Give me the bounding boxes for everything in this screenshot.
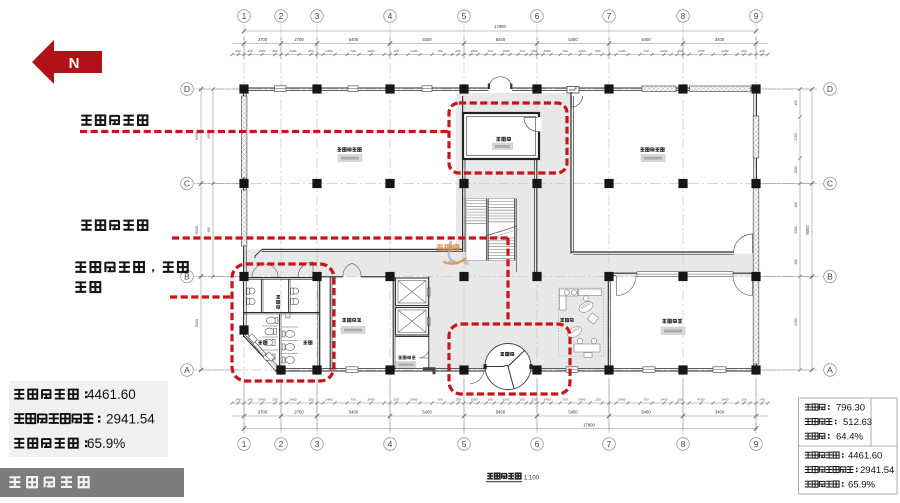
svg-text:4: 4 <box>388 11 393 21</box>
svg-text:5: 5 <box>462 11 467 21</box>
svg-text:700: 700 <box>562 49 567 53</box>
svg-text:6: 6 <box>535 439 540 449</box>
svg-text:250: 250 <box>677 49 682 53</box>
svg-text:9400: 9400 <box>794 318 798 325</box>
svg-text:2400: 2400 <box>661 49 668 53</box>
svg-text:2400: 2400 <box>259 49 266 53</box>
svg-text:250: 250 <box>677 398 682 402</box>
svg-text:3400: 3400 <box>715 410 725 415</box>
svg-text:700: 700 <box>437 398 442 402</box>
svg-text:C: C <box>827 179 833 189</box>
svg-text:796.30: 796.30 <box>836 403 865 414</box>
svg-text:3400: 3400 <box>715 37 725 42</box>
svg-text:1: 1 <box>242 11 247 21</box>
svg-text:9300: 9300 <box>195 319 199 327</box>
svg-text:250: 250 <box>531 49 536 53</box>
svg-text:7: 7 <box>607 439 612 449</box>
svg-text:A: A <box>184 365 190 375</box>
svg-text:65.9%: 65.9% <box>848 480 875 491</box>
svg-text:B: B <box>827 272 833 282</box>
svg-text:1:100: 1:100 <box>524 476 540 482</box>
svg-text:8: 8 <box>681 11 686 21</box>
svg-text:9: 9 <box>754 439 759 449</box>
svg-text:480: 480 <box>207 133 211 139</box>
svg-text:700: 700 <box>350 49 355 53</box>
svg-text:4750: 4750 <box>698 398 705 402</box>
svg-text:2400: 2400 <box>368 398 375 402</box>
svg-text:250: 250 <box>455 398 460 402</box>
svg-text:240: 240 <box>759 398 764 402</box>
svg-text:6: 6 <box>535 11 540 21</box>
svg-text:700: 700 <box>350 398 355 402</box>
svg-text:150: 150 <box>519 49 524 53</box>
svg-text:5400: 5400 <box>641 37 651 42</box>
svg-text:2: 2 <box>279 439 284 449</box>
svg-text:2400: 2400 <box>544 49 551 53</box>
svg-text:2400: 2400 <box>368 49 375 53</box>
svg-text:D: D <box>827 84 833 94</box>
svg-text:480: 480 <box>794 202 798 208</box>
svg-text:2400: 2400 <box>259 398 266 402</box>
svg-text:4750: 4750 <box>698 49 705 53</box>
svg-text:250: 250 <box>595 49 600 53</box>
svg-text:700: 700 <box>643 49 648 53</box>
svg-text:2400: 2400 <box>722 398 729 402</box>
svg-text:9400: 9400 <box>195 132 199 140</box>
svg-text:150: 150 <box>487 49 492 53</box>
svg-text:2700: 2700 <box>258 37 268 42</box>
svg-text:250: 250 <box>595 398 600 402</box>
svg-text:240: 240 <box>247 398 252 402</box>
svg-text:240: 240 <box>759 49 764 53</box>
svg-text:5400: 5400 <box>496 410 506 415</box>
svg-text:700: 700 <box>643 398 648 402</box>
svg-text:C: C <box>184 179 190 189</box>
svg-text:64.4%: 64.4% <box>836 432 863 443</box>
svg-text:1500: 1500 <box>503 49 510 53</box>
svg-text:2400: 2400 <box>619 49 626 53</box>
svg-text:5400: 5400 <box>422 410 432 415</box>
svg-text:150: 150 <box>519 398 524 402</box>
svg-text:3: 3 <box>315 11 320 21</box>
svg-text:4461.60: 4461.60 <box>87 387 136 402</box>
svg-text:250: 250 <box>741 398 746 402</box>
svg-text:240: 240 <box>235 49 240 53</box>
svg-text:1500: 1500 <box>794 166 798 173</box>
svg-text:2400: 2400 <box>326 398 333 402</box>
svg-text:17900: 17900 <box>494 24 506 29</box>
svg-text:8: 8 <box>681 439 686 449</box>
svg-text:1: 1 <box>242 439 247 449</box>
svg-text:250: 250 <box>455 49 460 53</box>
svg-text:5: 5 <box>462 439 467 449</box>
svg-text:5400: 5400 <box>641 410 651 415</box>
svg-text:1500: 1500 <box>471 398 478 402</box>
svg-text:150: 150 <box>794 100 798 106</box>
svg-text:2400: 2400 <box>619 398 626 402</box>
svg-text:250: 250 <box>741 49 746 53</box>
svg-text:2700: 2700 <box>294 410 304 415</box>
svg-text:5400: 5400 <box>422 37 432 42</box>
svg-text:2700: 2700 <box>294 37 304 42</box>
svg-text:D: D <box>184 84 190 94</box>
svg-text:250: 250 <box>272 398 277 402</box>
svg-text:700: 700 <box>437 49 442 53</box>
svg-text:9300: 9300 <box>195 226 199 234</box>
svg-text:2400: 2400 <box>290 398 297 402</box>
svg-text:480: 480 <box>207 227 211 233</box>
svg-text:250: 250 <box>393 398 398 402</box>
svg-text:1500: 1500 <box>471 49 478 53</box>
svg-text:1500: 1500 <box>503 398 510 402</box>
svg-text:5400: 5400 <box>349 37 359 42</box>
svg-text:2: 2 <box>279 11 284 21</box>
svg-text:2400: 2400 <box>326 49 333 53</box>
svg-text:240: 240 <box>247 49 252 53</box>
svg-text:A: A <box>827 365 833 375</box>
svg-text:2400: 2400 <box>661 398 668 402</box>
svg-text:5400: 5400 <box>568 410 578 415</box>
svg-text:700: 700 <box>562 398 567 402</box>
svg-text:2400: 2400 <box>722 49 729 53</box>
svg-text:5400: 5400 <box>496 37 506 42</box>
svg-text:5400: 5400 <box>349 410 359 415</box>
svg-text:2700: 2700 <box>258 410 268 415</box>
svg-text:2400: 2400 <box>411 398 418 402</box>
svg-text:250: 250 <box>272 49 277 53</box>
svg-text:2400: 2400 <box>544 398 551 402</box>
svg-text:2400: 2400 <box>579 398 586 402</box>
svg-text:N: N <box>69 55 80 72</box>
svg-text:4461.60: 4461.60 <box>848 451 882 462</box>
svg-text:240: 240 <box>235 398 240 402</box>
svg-text:65.9%: 65.9% <box>87 436 125 451</box>
svg-text:2941.54: 2941.54 <box>106 412 155 427</box>
svg-text:2400: 2400 <box>579 49 586 53</box>
svg-text:2400: 2400 <box>290 49 297 53</box>
svg-text:5400: 5400 <box>568 37 578 42</box>
svg-text:9: 9 <box>754 11 759 21</box>
svg-text:4: 4 <box>388 439 393 449</box>
svg-text:9300: 9300 <box>805 225 810 235</box>
svg-text:250: 250 <box>393 49 398 53</box>
svg-text:480: 480 <box>794 259 798 265</box>
svg-text:150: 150 <box>487 398 492 402</box>
svg-text:2400: 2400 <box>411 49 418 53</box>
svg-text:250: 250 <box>531 398 536 402</box>
svg-text:17900: 17900 <box>583 423 595 428</box>
svg-text:250: 250 <box>308 49 313 53</box>
svg-text:512.63: 512.63 <box>843 417 872 428</box>
svg-text:250: 250 <box>308 398 313 402</box>
svg-text:2700: 2700 <box>794 133 798 140</box>
svg-text:3: 3 <box>315 439 320 449</box>
svg-text:7: 7 <box>607 11 612 21</box>
svg-text:9200: 9200 <box>794 226 798 233</box>
svg-text:2941.54: 2941.54 <box>860 465 894 476</box>
